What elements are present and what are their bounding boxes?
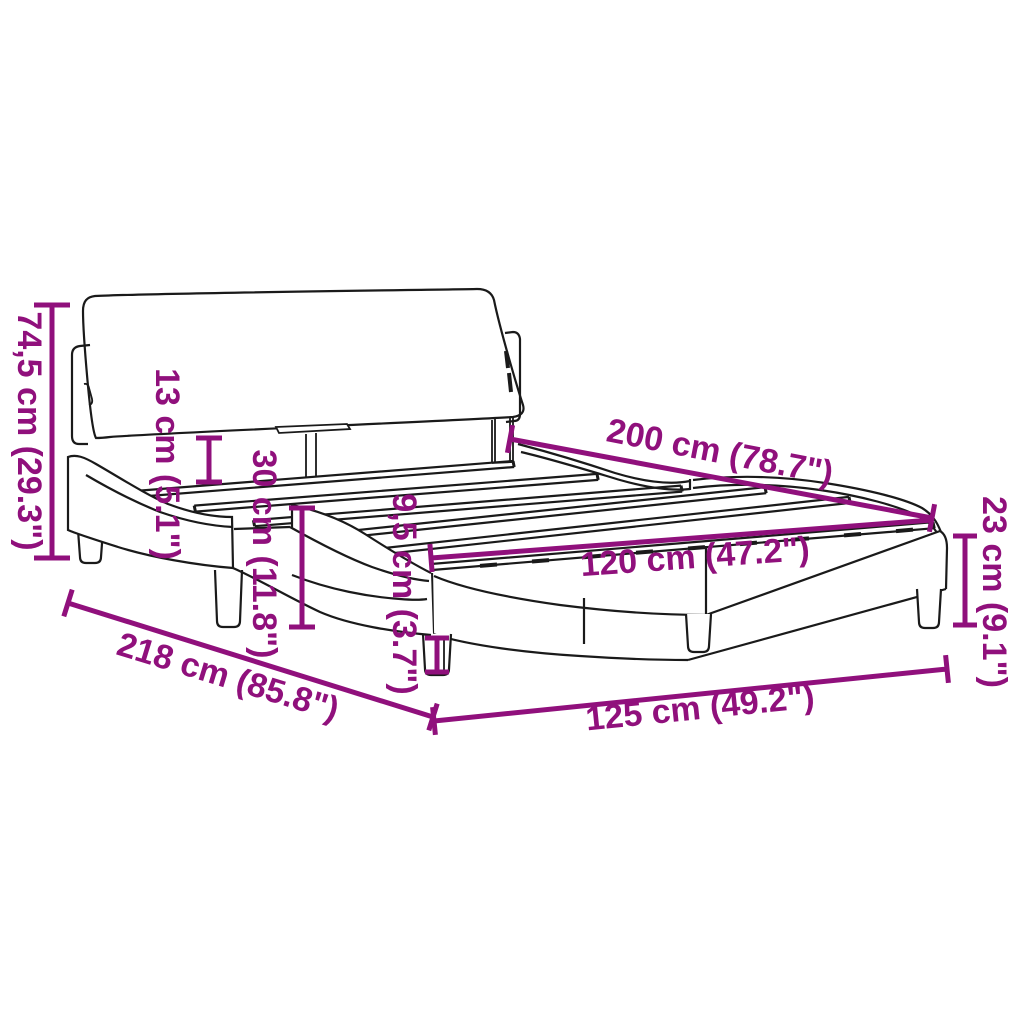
svg-text:30 cm (11.8"): 30 cm (11.8") [245,450,283,659]
svg-text:74,5 cm (29.3"): 74,5 cm (29.3") [10,311,48,550]
svg-text:13 cm (5.1"): 13 cm (5.1") [148,368,186,560]
svg-text:120 cm (47.2"): 120 cm (47.2") [579,530,811,584]
svg-text:9,5 cm (3.7"): 9,5 cm (3.7") [385,493,423,694]
svg-text:23 cm (9.1"): 23 cm (9.1") [975,496,1013,688]
svg-text:125 cm (49.2"): 125 cm (49.2") [584,677,816,738]
